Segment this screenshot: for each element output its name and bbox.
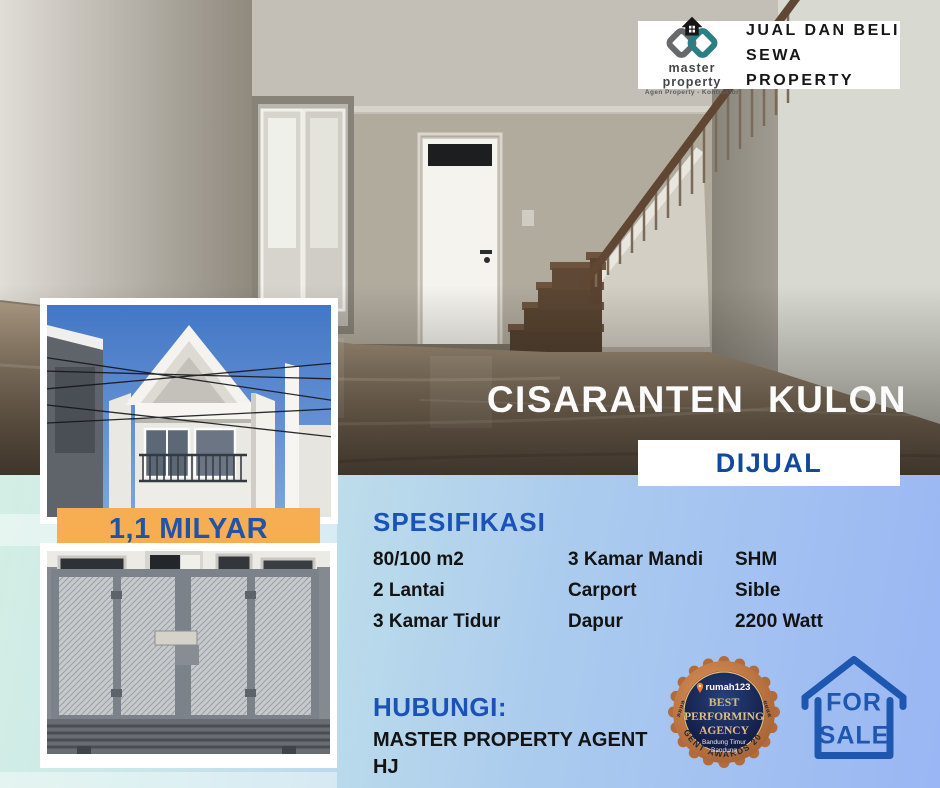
status-box: DIJUAL (638, 440, 900, 486)
spec-item: 2200 Watt (735, 611, 823, 633)
brand-logo: master property Agen Property - Kontrakt… (638, 14, 746, 96)
spec-item: 80/100 m2 (373, 549, 500, 571)
status-label: DIJUAL (716, 448, 823, 479)
brand-slogan-line2: SEWA PROPERTY (746, 43, 900, 93)
specs-column-2: 3 Kamar Mandi Carport Dapur (568, 549, 703, 642)
award-brand: rumah123 (706, 682, 751, 693)
decor-stripe-bottom (0, 772, 337, 788)
award-region-2: Bandung (711, 747, 737, 754)
spec-item: Sible (735, 580, 823, 602)
house-outline-icon: FOR SALE (795, 650, 913, 763)
contact-name-line2: HJ (373, 754, 647, 781)
gate-photo-card (40, 543, 337, 768)
spec-item: 2 Lantai (373, 580, 500, 602)
brand-name: master property (638, 61, 746, 89)
brand-slogan: JUAL DAN BELI SEWA PROPERTY (746, 18, 900, 93)
specs-heading: SPESIFIKASI (373, 507, 546, 538)
property-flyer: master property Agen Property - Kontrakt… (0, 0, 940, 788)
specs-column-1: 80/100 m2 2 Lantai 3 Kamar Tidur (373, 549, 500, 642)
spec-item: Carport (568, 580, 703, 602)
award-title-3: AGENCY (699, 725, 750, 737)
spec-item: Dapur (568, 611, 703, 633)
for-sale-sign: FOR SALE (795, 650, 913, 763)
master-property-logo-icon (647, 16, 737, 58)
price-label: 1,1 MILYAR (109, 513, 268, 546)
spec-item: 3 Kamar Tidur (373, 611, 500, 633)
spec-item: SHM (735, 549, 823, 571)
award-region-1: Bandung Timur (702, 739, 747, 746)
award-medal-icon: AGENT AWARDS 2024 »»»» «««« rumah123 BES… (666, 652, 782, 770)
contact-name-line1: MASTER PROPERTY AGENT (373, 727, 647, 754)
sale-sign-line1: FOR (826, 689, 882, 717)
spec-item: 3 Kamar Mandi (568, 549, 703, 571)
award-badge: AGENT AWARDS 2024 »»»» «««« rumah123 BES… (666, 652, 782, 770)
award-title-2: PERFORMING (684, 711, 764, 723)
brand-card: master property Agen Property - Kontrakt… (638, 21, 900, 89)
sale-sign-line2: SALE (819, 722, 890, 750)
contact-heading: HUBUNGI: (373, 692, 507, 723)
specs-column-3: SHM Sible 2200 Watt (735, 549, 823, 642)
contact-name: MASTER PROPERTY AGENT HJ (373, 727, 647, 781)
exterior-photo (47, 305, 331, 517)
gate-photo (47, 551, 330, 754)
brand-slogan-line1: JUAL DAN BELI (746, 18, 900, 43)
exterior-photo-card (40, 298, 338, 524)
award-title-1: BEST (709, 695, 740, 709)
brand-tagline: Agen Property - Kontraktor (638, 89, 746, 96)
listing-title: CISARANTEN KULON (487, 379, 907, 421)
